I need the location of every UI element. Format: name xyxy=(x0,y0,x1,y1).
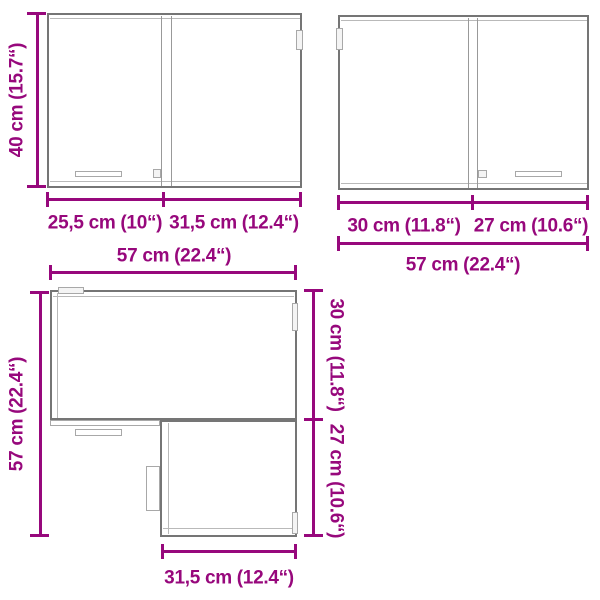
dim-tick xyxy=(162,192,165,207)
door-hinge xyxy=(58,287,84,294)
dim-tick xyxy=(304,289,323,292)
cabinet-body xyxy=(338,15,589,190)
dim-tick xyxy=(49,265,52,280)
dim-label-bottom-width: 31,5 cm (12.4“) xyxy=(164,569,294,588)
dimension-diagram: 40 cm (15.7“) 25,5 cm (10“) 31,5 cm (12.… xyxy=(0,0,600,600)
door-hinge xyxy=(292,512,298,534)
door-hinge xyxy=(292,303,298,331)
corner-upper-panel xyxy=(50,290,297,420)
dimension-line xyxy=(312,290,315,537)
dim-label-right-upper-depth: 30 cm (11.8“) xyxy=(327,298,346,411)
door-handle xyxy=(146,466,160,511)
dim-label-left-door: 25,5 cm (10“) xyxy=(48,214,162,233)
dimension-line xyxy=(47,198,302,201)
dim-tick xyxy=(294,265,297,280)
dim-tick xyxy=(586,236,589,251)
dim-label-top-width: 57 cm (22.4“) xyxy=(117,247,231,266)
door-latch xyxy=(153,169,161,178)
corner-lower-panel xyxy=(160,420,297,537)
door-divider-right-line xyxy=(477,18,478,188)
carcass-top-line xyxy=(50,18,300,19)
dim-tick xyxy=(46,192,49,207)
carcass-left-line xyxy=(57,293,58,418)
door-handle xyxy=(75,429,122,436)
dimension-line xyxy=(338,201,589,204)
dim-tick xyxy=(294,544,297,559)
dim-label-left-door: 30 cm (11.8“) xyxy=(347,217,460,236)
dim-tick xyxy=(304,534,323,537)
carcass-bottom-line xyxy=(163,528,294,529)
dimension-line xyxy=(338,242,589,245)
carcass-top-line xyxy=(341,20,587,21)
dim-tick xyxy=(30,291,49,294)
dim-tick xyxy=(161,544,164,559)
dimension-line xyxy=(39,292,42,537)
carcass-top-line xyxy=(53,296,294,297)
dim-label-right-door: 31,5 cm (12.4“) xyxy=(169,214,299,233)
carcass-bottom-strip xyxy=(50,420,160,426)
dim-tick xyxy=(304,418,323,421)
dim-label-right-door: 27 cm (10.6“) xyxy=(474,217,588,236)
door-hinge xyxy=(296,30,303,50)
dim-label-height: 40 cm (15.7“) xyxy=(8,43,27,157)
dim-tick xyxy=(586,195,589,210)
carcass-bottom-line xyxy=(341,183,587,184)
dim-tick xyxy=(27,185,46,188)
dim-tick xyxy=(30,534,49,537)
dimension-line xyxy=(50,271,297,274)
door-divider-left-line xyxy=(161,16,162,186)
door-divider-left-line xyxy=(468,18,469,188)
dim-tick xyxy=(27,12,46,15)
dim-label-total-width: 57 cm (22.4“) xyxy=(406,256,520,275)
dim-tick xyxy=(299,192,302,207)
door-divider-right-line xyxy=(171,16,172,186)
dimension-line xyxy=(162,550,297,553)
door-handle xyxy=(75,171,122,177)
dimension-line xyxy=(36,13,39,188)
cabinet-body xyxy=(47,13,302,188)
door-handle xyxy=(515,171,562,177)
door-latch xyxy=(478,170,487,178)
dim-label-left-depth: 57 cm (22.4“) xyxy=(8,357,27,471)
dim-tick xyxy=(337,236,340,251)
door-hinge xyxy=(336,28,343,50)
dim-tick xyxy=(471,195,474,210)
dim-tick xyxy=(337,195,340,210)
dim-label-right-lower-depth: 27 cm (10.6“) xyxy=(327,424,346,538)
carcass-bottom-line xyxy=(50,181,300,182)
carcass-left-line xyxy=(168,423,169,534)
